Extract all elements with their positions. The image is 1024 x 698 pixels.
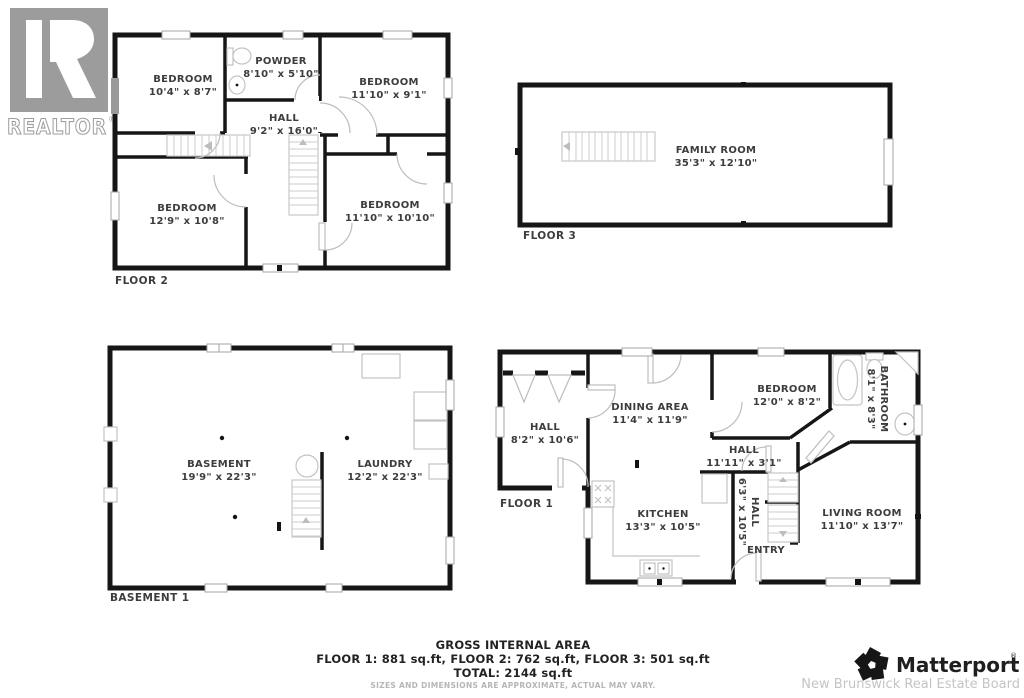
room-label-entry: ENTRY <box>747 545 785 556</box>
appliance-icon <box>362 354 400 378</box>
fridge-icon <box>702 474 727 503</box>
floor3-label: FLOOR 3 <box>523 230 576 242</box>
closet-bifold-door <box>548 375 571 402</box>
room-label-living: LIVING ROOM <box>822 508 902 519</box>
toilet-icon <box>227 48 233 65</box>
room-dims-hall2: 9'2" x 16'0" <box>250 126 318 137</box>
summary-title: GROSS INTERNAL AREA <box>436 638 591 652</box>
floor2-label: FLOOR 2 <box>115 275 168 287</box>
room-dims-bedroom-bl: 12'9" x 10'8" <box>149 216 225 227</box>
room-dims-family-room: 35'3" x 12'10" <box>675 158 758 169</box>
room-dims-kitchen: 13'3" x 10'5" <box>625 522 701 533</box>
realtor-logo: REALTOR ® <box>7 8 117 139</box>
corner-sink-icon <box>896 352 918 374</box>
room-dims-living: 11'10" x 13'7" <box>821 521 904 532</box>
room-dims-hall-vert: 6'3" x 10'5" <box>736 478 747 546</box>
basement-plan: BASEMENT 19'9" x 22'3" LAUNDRY 12'2" x 2… <box>104 344 454 604</box>
room-label-basement: BASEMENT <box>187 459 251 470</box>
room-label-hall-vert: HALL <box>749 497 760 527</box>
summary-total-area: TOTAL: 2144 sq.ft <box>454 666 573 680</box>
room-label-hall2: HALL <box>269 113 299 124</box>
tank-icon <box>296 455 318 477</box>
room-dims-bathroom: 8'1" x 8'3" <box>865 368 876 429</box>
washer-icon <box>414 392 447 420</box>
floor2-plan: BEDROOM 10'4" x 8'7" POWDER 8'10" x 5'10… <box>111 31 452 287</box>
room-label-bedroom-bl: BEDROOM <box>157 203 217 214</box>
room-label-bedroom-br: BEDROOM <box>360 200 420 211</box>
room-label-bedroom-tr: BEDROOM <box>359 77 419 88</box>
floor-plan-page: REALTOR ® <box>0 0 1024 698</box>
utility-icon <box>429 464 448 479</box>
window-well-icon <box>104 488 117 502</box>
floor-plan-image: REALTOR ® <box>0 0 1024 698</box>
room-label-hall-mid: HALL <box>729 445 759 456</box>
matterport-logo: Matterport ® New Brunswick Real Estate B… <box>801 647 1020 692</box>
summary-disclaimer: SIZES AND DIMENSIONS ARE APPROXIMATE, AC… <box>370 681 655 690</box>
room-label-bathroom: BATHROOM <box>878 366 889 433</box>
room-label-bedroom-tl: BEDROOM <box>153 74 213 85</box>
room-dims-powder: 8'10" x 5'10" <box>243 69 319 80</box>
room-label-family-room: FAMILY ROOM <box>676 145 757 156</box>
matterport-registered-mark: ® <box>1010 652 1017 660</box>
room-dims-bedroom-tl: 10'4" x 8'7" <box>149 87 217 98</box>
basement-label: BASEMENT 1 <box>110 592 189 604</box>
room-dims-bedroom-tr: 11'10" x 9'1" <box>351 90 427 101</box>
closet-bifold-door <box>513 375 535 402</box>
summary-floor-areas: FLOOR 1: 881 sq.ft, FLOOR 2: 762 sq.ft, … <box>316 652 710 666</box>
room-dims-hall-left: 8'2" x 10'6" <box>511 435 579 446</box>
room-dims-basement: 19'9" x 22'3" <box>181 472 257 483</box>
floor1-plan: HALL 8'2" x 10'6" DINING AREA 11'4" x 11… <box>496 348 922 587</box>
dryer-icon <box>414 421 447 449</box>
real-estate-board-text: New Brunswick Real Estate Board <box>801 677 1020 692</box>
room-label-powder: POWDER <box>255 56 307 67</box>
room-dims-bedroom-br: 11'10" x 10'10" <box>345 213 435 224</box>
window-well-icon <box>104 427 117 441</box>
room-dims-hall-mid: 11'11" x 3'1" <box>706 458 782 469</box>
matterport-wordmark: Matterport <box>896 653 1020 677</box>
room-dims-dining: 11'4" x 11'9" <box>612 415 688 426</box>
realtor-logo-text: REALTOR <box>7 115 107 139</box>
room-label-bedroom1: BEDROOM <box>757 384 817 395</box>
room-dims-laundry: 12'2" x 22'3" <box>347 472 423 483</box>
area-summary: GROSS INTERNAL AREA FLOOR 1: 881 sq.ft, … <box>316 638 710 690</box>
room-label-kitchen: KITCHEN <box>637 509 688 520</box>
room-label-dining: DINING AREA <box>611 402 688 413</box>
floor1-label: FLOOR 1 <box>500 498 553 510</box>
room-label-hall-left: HALL <box>530 422 560 433</box>
floor3-plan: FAMILY ROOM 35'3" x 12'10" FLOOR 3 <box>515 82 893 242</box>
room-dims-bedroom1: 12'0" x 8'2" <box>753 397 821 408</box>
room-label-laundry: LAUNDRY <box>357 459 413 470</box>
